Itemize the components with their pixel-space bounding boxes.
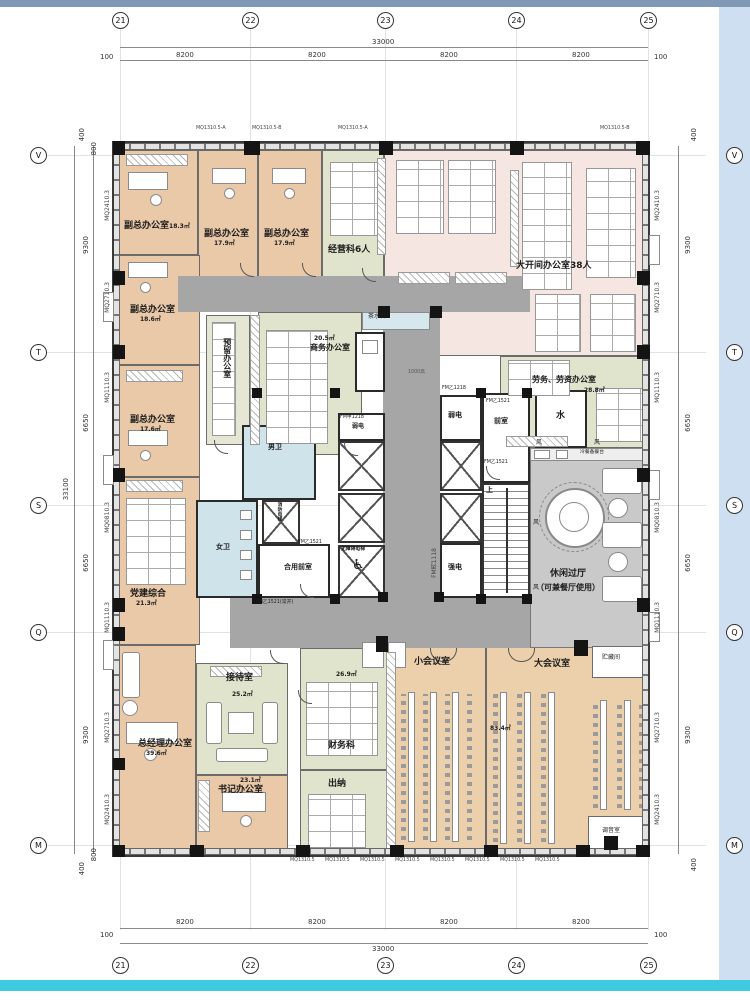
room-label: 商务办公室 — [310, 344, 350, 353]
dim-text: 9300 — [684, 236, 692, 254]
room-label: 副总办公室 — [204, 230, 249, 240]
column — [252, 388, 262, 398]
grid-bubble-Q: Q — [30, 624, 47, 641]
grid-bubble-V: V — [726, 147, 743, 164]
wall-code: MQ1310.5 — [360, 858, 385, 863]
dim-text: 9300 — [82, 726, 90, 744]
room-label: 合用前室 — [284, 564, 312, 572]
dim-text: 100 — [100, 931, 113, 939]
grid-bubble-25: 25 — [640, 957, 657, 974]
wall-code: MQ0810.3 — [104, 502, 111, 533]
dim-text: 9300 — [684, 726, 692, 744]
fire-door-label: FM乙1521(常开) — [256, 600, 293, 605]
dim-line — [120, 47, 648, 48]
counter-label: 冷餐备餐台 — [580, 450, 604, 455]
wall-code: MQ1110.3 — [654, 372, 661, 403]
dim-text: 8200 — [440, 51, 458, 59]
column — [113, 468, 125, 482]
wheelchair-icon: ♿ — [352, 558, 365, 573]
room-label: 出纳 — [328, 780, 346, 790]
wall-code: MQ2410.3 — [654, 190, 661, 221]
wall-code: MQ1110.3 — [104, 602, 111, 633]
room-label: 休闲过厅 — [550, 570, 586, 580]
room-label: 副总办公室18.3㎡ — [124, 222, 190, 232]
dim-line — [93, 146, 94, 854]
grid-bubble-24: 24 — [508, 12, 525, 29]
dim-text: 6650 — [82, 414, 90, 432]
column — [376, 636, 388, 652]
dim-text: 8200 — [176, 918, 194, 926]
room-label: 男卫 — [268, 444, 282, 452]
dim-line — [678, 146, 679, 854]
room-label: 风 — [536, 440, 542, 447]
room-area: 26.9㎡ — [336, 672, 357, 679]
room-area: 18.3㎡ — [169, 223, 190, 230]
room-label: 强电 — [448, 564, 462, 572]
grid-bubble-M: M — [726, 837, 743, 854]
dim-text: 8200 — [308, 918, 326, 926]
column — [113, 845, 125, 857]
wall-code: MQ2710.3 — [654, 712, 661, 743]
dim-text: 800 — [90, 142, 98, 155]
room-label: 预留办公室 — [222, 338, 231, 378]
dim-text: 8200 — [440, 918, 458, 926]
room-area: 23.1㎡ — [240, 778, 261, 785]
dim-text: 9300 — [82, 236, 90, 254]
room-label: 调音室 — [602, 828, 620, 835]
facade-bump — [649, 470, 660, 500]
room-area: 17.9㎡ — [214, 241, 235, 248]
column — [604, 836, 618, 850]
room-area: 28.8㎡ — [584, 388, 605, 395]
room-label: 弱电 — [352, 424, 364, 431]
room-label: 财务科 — [328, 742, 355, 752]
dim-text: 6650 — [684, 414, 692, 432]
room-label: 弱电 — [448, 412, 462, 420]
room-label: 经营科6人 — [328, 246, 370, 256]
wall-code: MQ2410.3 — [104, 190, 111, 221]
grid-bubble-24: 24 — [508, 957, 525, 974]
room-label: 水 — [556, 412, 565, 422]
fire-door-label: FM丙1118 — [430, 548, 439, 578]
room-label: 副总办公室 — [264, 230, 309, 240]
dim-text: 400 — [78, 128, 86, 141]
room-label: 小会议室 — [414, 658, 450, 668]
room-area: 25.2㎡ — [232, 692, 253, 699]
wall-code: MQ2410.3 — [654, 794, 661, 825]
room-label: 劳务、劳资办公室 — [532, 376, 596, 385]
room-label: 接待室 — [226, 674, 253, 684]
column — [113, 627, 125, 641]
room-label: 风 — [533, 585, 539, 592]
dim-text: 8200 — [176, 51, 194, 59]
room-label: 风 — [594, 440, 600, 447]
room-label: 茶水台 — [368, 314, 386, 321]
column — [113, 271, 125, 285]
column — [390, 845, 404, 857]
dim-text: 33000 — [372, 38, 394, 46]
room-label: 消防电梯 — [276, 502, 281, 521]
height-note: 1000高 — [408, 370, 425, 375]
top-border-band — [0, 0, 750, 7]
dim-text: 8200 — [572, 51, 590, 59]
grid-bubble-23: 23 — [377, 12, 394, 29]
column — [113, 758, 125, 770]
room-label: 总经理办公室 — [138, 740, 192, 750]
dim-text: 400 — [690, 128, 698, 141]
grid-bubble-Q: Q — [726, 624, 743, 641]
column — [379, 141, 393, 155]
grid-bubble-22: 22 — [242, 957, 259, 974]
column — [330, 594, 340, 604]
column — [330, 388, 340, 398]
column — [576, 845, 590, 857]
dim-text: 400 — [690, 858, 698, 871]
column — [636, 141, 650, 155]
wall-code: MQ2710.3 — [104, 712, 111, 743]
room-label: 女卫 — [216, 544, 230, 552]
column — [476, 388, 486, 398]
dim-line — [120, 60, 648, 61]
dim-text: 6650 — [82, 554, 90, 572]
facade-bump — [103, 640, 114, 670]
fire-door-label: FM乙1521 — [298, 540, 322, 545]
column — [636, 845, 650, 857]
stair-up-label: 上 — [486, 487, 493, 495]
wall-code: MQ1310.5 — [325, 858, 350, 863]
column — [510, 141, 524, 155]
grid-bubble-T: T — [30, 344, 47, 361]
room-label: 大会议室 — [534, 660, 570, 670]
grid-bubble-V: V — [30, 147, 47, 164]
column — [574, 640, 588, 656]
room-label: 副总办公室 — [130, 306, 175, 316]
column — [637, 468, 650, 482]
room-label: 无障碍电梯 — [341, 547, 365, 552]
wall-code: MQ2410.3 — [104, 794, 111, 825]
dim-text: 100 — [654, 53, 667, 61]
column — [637, 345, 650, 359]
wall-code: MQ1310.5 — [430, 858, 455, 863]
room-label: 大开间办公室38人 — [516, 262, 592, 272]
column — [113, 598, 125, 612]
dim-text: 8200 — [308, 51, 326, 59]
grid-bubble-M: M — [30, 837, 47, 854]
room-label: 党建综合 — [130, 590, 166, 600]
column — [113, 141, 125, 155]
column — [484, 845, 498, 857]
column — [637, 271, 650, 285]
fire-door-label: FM甲1218 — [340, 415, 364, 420]
wall-code: MQ0810.3 — [654, 502, 661, 533]
room-area: 17.9㎡ — [274, 241, 295, 248]
column — [378, 592, 388, 602]
column — [476, 594, 486, 604]
grid-bubble-S: S — [726, 497, 743, 514]
wall-code: MQ1310.5-B — [600, 126, 630, 131]
dim-line — [120, 943, 648, 944]
room-area: 39.6㎡ — [146, 751, 167, 758]
dim-text: 100 — [100, 53, 113, 61]
column — [522, 388, 532, 398]
dim-text: 6650 — [684, 554, 692, 572]
room-area: 18.6㎡ — [140, 317, 161, 324]
wall-code: MQ1310.5 — [395, 858, 420, 863]
room-area: 21.3㎡ — [136, 601, 157, 608]
room-label: 风 — [533, 520, 539, 527]
grid-bubble-25: 25 — [640, 12, 657, 29]
dim-text: 33000 — [372, 945, 394, 953]
wall-code: MQ1310.5-A — [338, 126, 368, 131]
column — [244, 141, 260, 155]
fire-door-label: FM乙1218 — [442, 386, 466, 391]
exterior-wall-outline — [112, 141, 650, 857]
dim-text: 800 — [90, 848, 98, 861]
wall-code: MQ1110.3 — [104, 372, 111, 403]
wall-code: MQ2710.3 — [104, 282, 111, 313]
wall-code: MQ1310.5 — [535, 858, 560, 863]
fire-door-label: FM乙1521 — [484, 460, 508, 465]
wall-code: MQ1310.5 — [465, 858, 490, 863]
wall-code: MQ2710.3 — [654, 282, 661, 313]
bottom-border-band — [0, 980, 750, 991]
wall-code: MQ1310.5 — [290, 858, 315, 863]
room-label: 贮藏间 — [602, 655, 620, 662]
facade-bump — [649, 235, 660, 265]
column — [434, 592, 444, 602]
column — [430, 306, 442, 318]
column — [113, 345, 125, 359]
room-label: 书记办公室 — [218, 786, 263, 796]
wall-code: MQ1110.3 — [654, 602, 661, 633]
grid-bubble-21: 21 — [112, 12, 129, 29]
floor-plan-page: 副总办公室18.3㎡ 副总办公室 17.9㎡ 副总办公室 17.9㎡ 经营科6人… — [0, 0, 750, 1000]
wall-code: MQ1310.5-B — [252, 126, 282, 131]
room-name: 副总办公室 — [124, 221, 169, 231]
column — [637, 598, 650, 612]
column — [296, 845, 310, 857]
room-area: 83.4㎡ — [490, 726, 511, 733]
wall-code: MQ1310.5 — [500, 858, 525, 863]
grid-bubble-21: 21 — [112, 957, 129, 974]
fire-door-label: FM乙1521 — [486, 399, 510, 404]
dim-line — [120, 928, 648, 929]
dim-text: 33100 — [62, 478, 70, 500]
grid-bubble-23: 23 — [377, 957, 394, 974]
dim-line — [74, 146, 75, 854]
room-label: 副总办公室 — [130, 416, 175, 426]
room-label: 前室 — [494, 418, 508, 426]
room-area: 17.6㎡ — [140, 427, 161, 434]
column — [522, 594, 532, 604]
room-area: 20.5㎡ — [314, 336, 335, 343]
dim-text: 400 — [78, 862, 86, 875]
grid-bubble-T: T — [726, 344, 743, 361]
grid-bubble-22: 22 — [242, 12, 259, 29]
dim-text: 100 — [654, 931, 667, 939]
wall-code: MQ1310.5-A — [196, 126, 226, 131]
room-label-sub: （可兼餐厅使用） — [536, 584, 600, 593]
column — [190, 845, 204, 857]
dim-text: 8200 — [572, 918, 590, 926]
grid-bubble-S: S — [30, 497, 47, 514]
